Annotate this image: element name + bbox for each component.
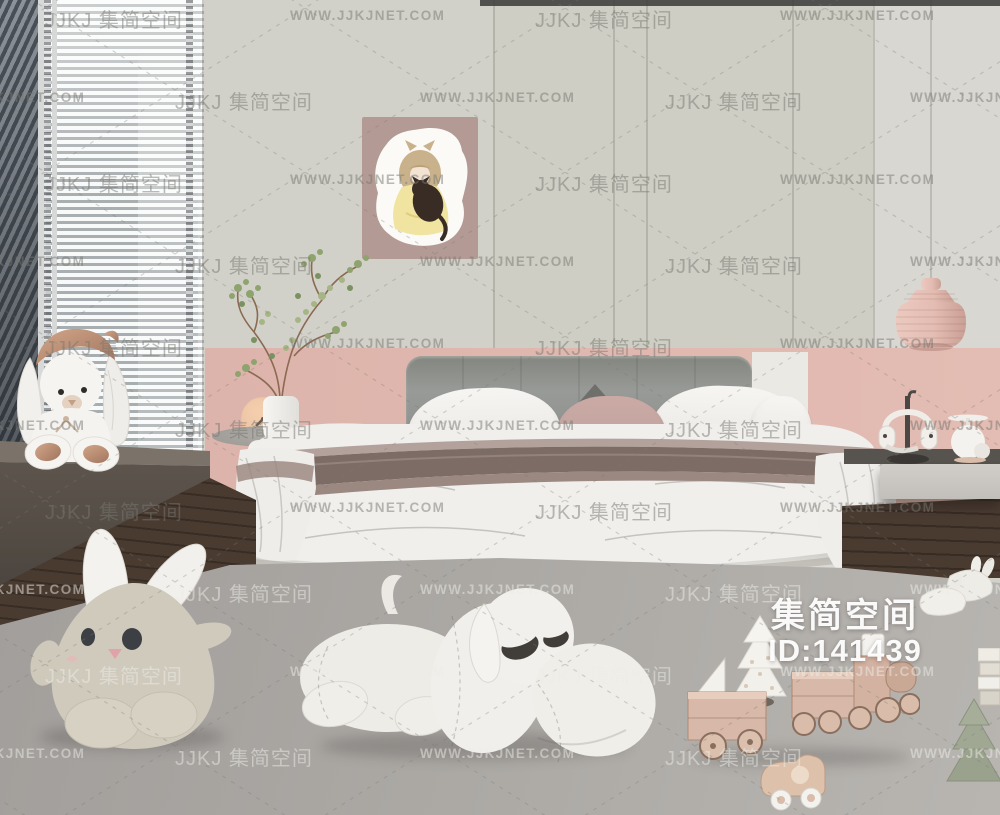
ceiling-shadow [480,0,1000,6]
watermark-url: WWW.JJKJNET.COM [290,8,445,23]
bedroom-render: JJKJ 集简空间WWW.JJKJNET.COMJJKJ 集简空间WWW.JJK… [0,0,1000,815]
toy-helicopter [946,406,994,464]
toy-car [755,748,830,812]
blind-cord [186,0,193,452]
pendant-lamp [888,266,972,358]
wall-seam [646,0,648,355]
toy-train [790,632,920,737]
wall-panel-center [493,0,873,362]
bunny-slippers [916,554,1000,620]
wall-seam [613,0,615,355]
headphones-on-stand [876,388,940,466]
toy-wagon [685,650,770,762]
floor-bunny-plush [22,525,234,753]
dog-plush [238,566,658,770]
wall-seam [493,0,495,355]
nightstand-drawer [880,464,1000,499]
sill-bunny-plush [8,322,142,474]
wall-seam [792,0,794,355]
blanket-stripe [238,430,890,508]
plant [202,236,402,418]
wall-seam [873,0,875,358]
book-stack [978,648,1000,710]
